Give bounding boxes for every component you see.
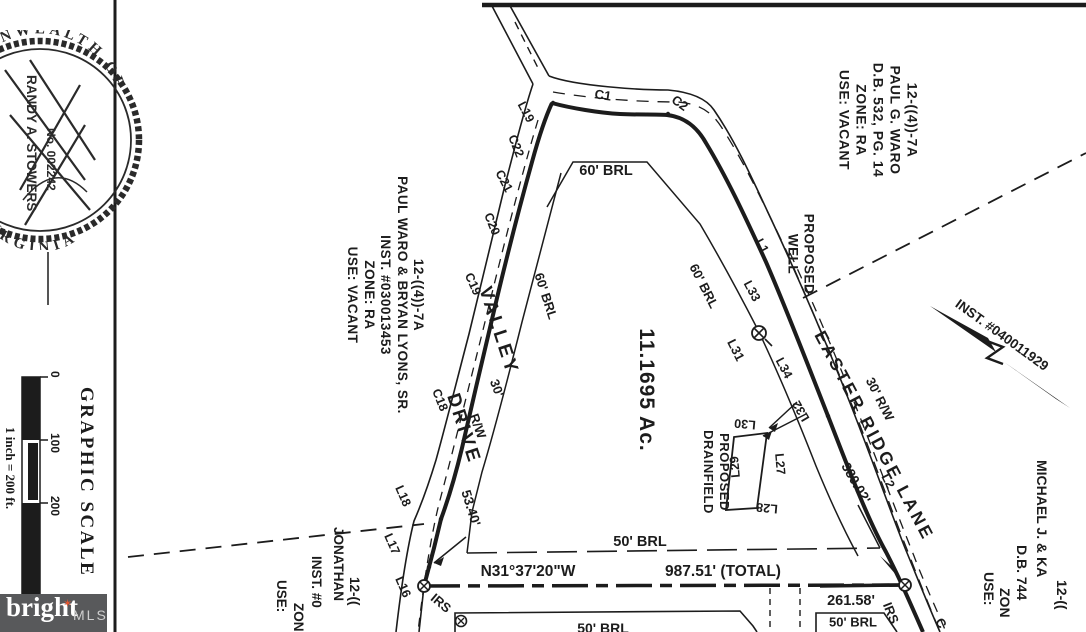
parcel-west-owner: PAUL WARO & BRYAN LYONS, SR. xyxy=(393,176,409,414)
parcel-south-owner: JONATHAN xyxy=(331,527,346,601)
parcel-west-ref: INST. #030013453 xyxy=(377,176,393,414)
tie-5340-leader xyxy=(434,537,466,563)
adjacent-line-sw xyxy=(128,524,424,557)
parcel-east-owner: MICHAEL J. & KA xyxy=(1034,460,1050,577)
scale-tick-0: 0 xyxy=(48,371,62,378)
parcel-west-id: 12-((4))-7A xyxy=(410,176,426,414)
parcel-area-label: 11.1695 Ac. xyxy=(634,328,658,452)
brl-lower-label: 50' BRL xyxy=(577,620,629,632)
parcel-block-north: 12-((4))-7A PAUL G. WARO D.B. 532, PG. 1… xyxy=(835,63,920,178)
proposed-well-line1: PROPOSED xyxy=(800,214,816,295)
seal-surveyor-number: No. 002242 xyxy=(44,128,58,191)
proposed-well-line2: WELL xyxy=(784,214,800,295)
boundary-valley xyxy=(424,103,552,586)
scale-tick-200: 200 xyxy=(48,496,62,516)
irs-symbol-sw xyxy=(418,580,430,592)
proposed-well-note: PROPOSED WELL xyxy=(784,214,817,295)
brl-top-label: 60' BRL xyxy=(579,163,632,179)
seal-surveyor-name: RANDY A. STOWERS xyxy=(24,75,39,211)
curve-label-c1: C1 xyxy=(594,86,613,103)
south-bearing-label: N31°37'20"W xyxy=(481,563,576,581)
parcel-west-use: USE: VACANT xyxy=(344,176,360,414)
parcel-north-id: 12-((4))-7A xyxy=(904,63,921,178)
parcel-north-use: USE: VACANT xyxy=(835,63,852,178)
parcel-south-zone: ZON xyxy=(291,603,306,632)
road-north-edge-east xyxy=(509,4,549,76)
parcel-south-id: 12-(( xyxy=(347,577,362,606)
scale-caption: 1 inch = 200 ft. xyxy=(2,427,18,509)
irs-symbol-se xyxy=(899,579,911,591)
parcel-block-west: 12-((4))-7A PAUL WARO & BRYAN LYONS, SR.… xyxy=(344,176,426,414)
proposed-drainfield-line2: DRAINFIELD xyxy=(700,430,716,514)
parcel-south-ref: INST. #0 xyxy=(309,556,324,608)
line-label-l28: L28 xyxy=(756,500,779,516)
brl-south-label: 50' BRL xyxy=(613,534,666,550)
brl-south-connector xyxy=(858,505,880,548)
lower-monument-symbol xyxy=(456,616,467,627)
brightmls-star-icon: ✶ xyxy=(63,597,72,610)
parcel-north-ref: D.B. 532, PG. 14 xyxy=(869,63,886,178)
road-north-edge-west xyxy=(492,6,533,84)
parcel-east-zone: ZON xyxy=(997,588,1013,618)
south-distance-label: 987.51' (TOTAL) xyxy=(665,563,781,581)
boundary-south-solid-seg xyxy=(820,585,905,586)
segment-distance-label: 261.58' xyxy=(827,593,875,609)
brl-south-line xyxy=(467,548,880,553)
graphic-scale-bar xyxy=(22,377,48,597)
boundary-easter xyxy=(552,103,923,632)
parcel-west-zone: ZONE: RA xyxy=(360,176,376,414)
valley-east-edge-south xyxy=(419,586,424,632)
line-label-l29: L29 xyxy=(727,456,743,479)
road-north-centerline xyxy=(515,22,540,72)
parcel-north-zone: ZONE: RA xyxy=(852,63,869,178)
parcel-east-ref: D.B. 744 xyxy=(1014,545,1030,600)
proposed-well-symbol xyxy=(752,326,772,346)
plat-page: COMMONWEALTH OF VIRGINIA RANDY A. STOWER… xyxy=(0,0,1086,632)
graphic-scale-title: GRAPHIC SCALE xyxy=(75,387,97,577)
brightmls-watermark: bright ✶ MLS xyxy=(0,594,107,632)
brl-lower-box-label: 50' BRL xyxy=(829,615,877,630)
parcel-south-use: USE: xyxy=(274,580,289,612)
parcel-east-id: 12-(( xyxy=(1054,580,1070,610)
parcel-east-use: USE: xyxy=(981,572,997,605)
parcel-north-owner: PAUL G. WARO xyxy=(887,63,904,178)
proposed-drainfield-note: PROPOSED DRAINFIELD xyxy=(700,430,732,514)
surveyor-seal: COMMONWEALTH OF VIRGINIA RANDY A. STOWER… xyxy=(0,30,145,250)
scale-tick-100: 100 xyxy=(48,433,62,453)
brightmls-suffix: MLS xyxy=(73,607,108,623)
line-label-l27: L27 xyxy=(772,453,788,476)
line-label-l30: L30 xyxy=(734,416,757,432)
